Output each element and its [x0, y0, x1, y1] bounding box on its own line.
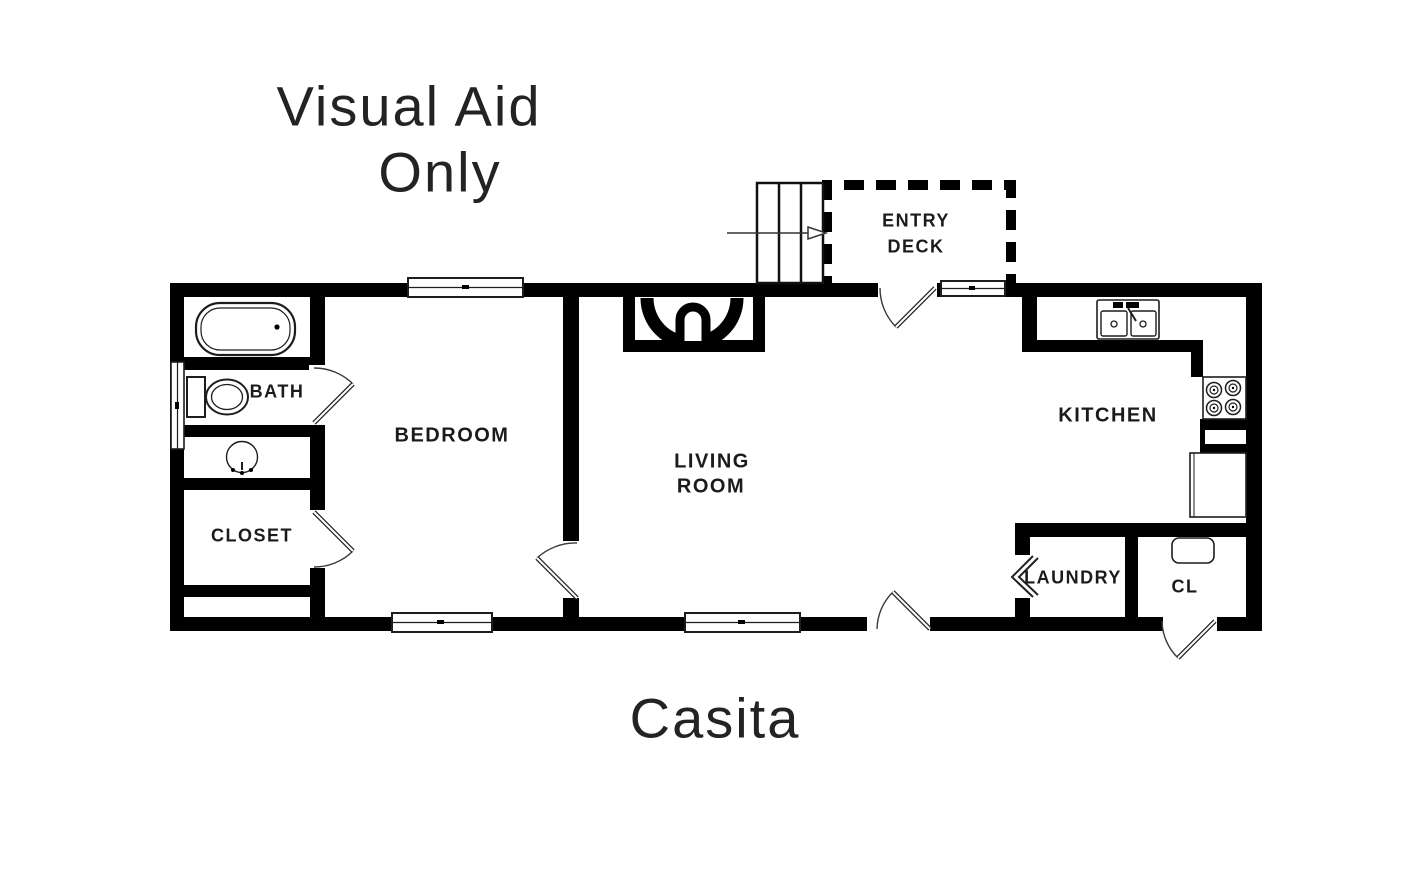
floor-plan-drawing [0, 0, 1401, 892]
wall-kitchen-counter-jut [1191, 340, 1203, 377]
plan-title: Casita [630, 686, 801, 751]
wall-stove-niche-side [1200, 419, 1205, 454]
wall-below-sink [170, 478, 325, 490]
window-bedroom-bottom [392, 613, 492, 632]
toilet-icon [187, 377, 248, 417]
wall-below-stove-1 [1200, 419, 1246, 430]
wall-laundry-left-upper [1015, 523, 1030, 555]
wall-bath-column [310, 283, 325, 630]
room-label-cl: CL [1172, 577, 1199, 598]
wall-laundry-cl-divider [1125, 537, 1138, 621]
wall-exterior-top [170, 283, 1262, 297]
wall-below-toilet [184, 425, 325, 437]
room-label-closet: CLOSET [211, 526, 293, 547]
bathtub-icon [196, 303, 295, 355]
room-label-bedroom: BEDROOM [395, 425, 510, 448]
room-label-entry-line1: ENTRY [882, 211, 950, 232]
floor-plan-page: Visual Aid Only Casita BATH BEDROOM CLOS… [0, 0, 1401, 892]
wall-laundry-left-lower [1015, 598, 1030, 621]
wall-exterior-left [170, 283, 184, 631]
cooktop-icon [1203, 377, 1246, 419]
window-living-bottom [685, 613, 800, 632]
room-label-laundry: LAUNDRY [1024, 568, 1122, 589]
fireplace-icon [629, 297, 759, 346]
watermark-line2: Only [378, 140, 501, 205]
wall-below-tub [170, 357, 325, 370]
bath-sink-icon [227, 442, 258, 476]
room-label-entry-line2: DECK [887, 237, 944, 258]
window-bedroom-top [408, 278, 523, 297]
wall-exterior-right [1246, 283, 1262, 631]
closet-shelf-icon [1172, 538, 1214, 563]
wall-laundry-top [1015, 523, 1246, 537]
room-label-living-line2: ROOM [677, 476, 745, 499]
watermark-line1: Visual Aid [277, 74, 542, 139]
window-bath-left [171, 362, 184, 449]
refrigerator-icon [1190, 453, 1246, 517]
room-label-bath: BATH [250, 382, 305, 403]
room-label-kitchen: KITCHEN [1058, 405, 1157, 428]
kitchen-sink-icon [1097, 300, 1159, 339]
wall-below-closet [184, 585, 325, 597]
window-entry-side [941, 281, 1005, 296]
wall-kitchen-counter-front [1022, 340, 1203, 352]
windows [171, 278, 1005, 632]
room-label-living-line1: LIVING [674, 451, 750, 474]
